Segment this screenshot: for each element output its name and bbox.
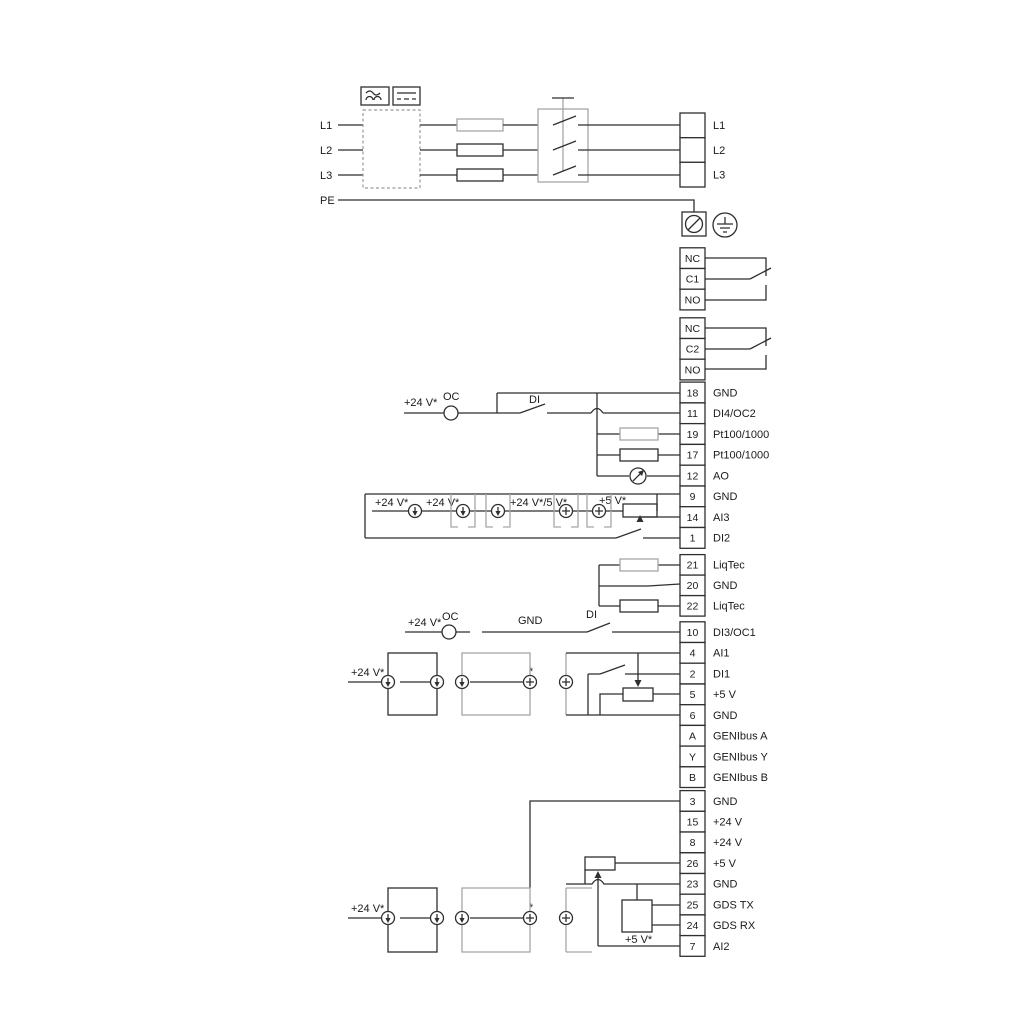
wire-label-24v: +24 V*: [351, 903, 385, 915]
pe-terminal: [682, 212, 706, 236]
liqtec-sensor-circuit: [599, 559, 680, 612]
terminal-number: 21: [687, 560, 699, 572]
current-source-icon: [560, 912, 573, 925]
current-sink-icon: [456, 912, 469, 925]
rcd-type-dc-icon: [393, 87, 420, 105]
mains-input-label: L2: [320, 145, 332, 157]
terminal-number: 14: [687, 512, 699, 524]
terminal-label: L2: [713, 145, 725, 157]
mains-output-block: L1L2L3: [680, 113, 725, 187]
io-strip-3: 3GND15+24 V8+24 V26+5 V23GND25GDS TX24GD…: [680, 791, 756, 957]
mains-input-section: L1 L2 L3 PE: [320, 87, 737, 237]
terminal-number: 4: [690, 648, 696, 660]
terminal-label: GENIbus B: [713, 772, 768, 784]
terminal-number: B: [689, 772, 696, 784]
terminal-label: LiqTec: [713, 601, 745, 613]
wire-label-24v: +24 V*: [375, 497, 409, 509]
terminal-number: 11: [687, 408, 698, 420]
terminal-cell: [680, 162, 705, 187]
current-sink-icon: [431, 912, 444, 925]
fuse-symbol: [457, 119, 503, 131]
terminal-label: Pt100/1000: [713, 429, 769, 441]
terminal-number: 20: [687, 580, 699, 592]
sensor-option-frame: [388, 888, 437, 952]
wire-label-24v: +24 V*: [404, 397, 438, 409]
wire-label-5v: +5 V*: [625, 934, 653, 946]
potentiometer-symbol: [623, 688, 653, 701]
terminal-label: DI2: [713, 533, 730, 545]
terminal-number: C1: [686, 274, 700, 286]
current-sink-icon: [382, 912, 395, 925]
ai1-di1-circuit: +24 V* +24 V* +24 V*/5 V*: [348, 653, 680, 715]
terminal-label: L1: [713, 120, 725, 132]
current-source-icon: [524, 912, 537, 925]
terminal-number: 3: [690, 796, 696, 808]
potentiometer-symbol: [585, 857, 615, 870]
wire-label-24v: +24 V*: [426, 497, 460, 509]
terminal-label: +24 V: [713, 837, 743, 849]
terminal-number: A: [689, 731, 696, 743]
wire-label-gnd: GND: [518, 615, 543, 627]
terminal-strips: L1L2L3NCC1NONCC2NO18GND11DI4/OC219Pt100/…: [680, 113, 769, 956]
mains-input-label: L3: [320, 170, 332, 182]
wire-label-24v-5v: +24 V*/5 V*: [510, 497, 568, 509]
wire-label-24v: +24 V*: [408, 617, 442, 629]
terminal-label: GDS RX: [713, 920, 756, 932]
terminal-number: 19: [687, 429, 699, 441]
terminal-label: GND: [713, 580, 738, 592]
terminal-number: 5: [690, 689, 696, 701]
current-sink-icon: [409, 505, 422, 518]
rcd-type-ac-icon: [361, 87, 389, 105]
terminal-number: 9: [690, 491, 696, 503]
wire-label-oc: OC: [442, 611, 459, 623]
terminal-number: 7: [690, 941, 696, 953]
ai2-gds-circuit: +24 V* +24 V* +24 V*/5 V* +5 V*: [348, 801, 680, 952]
terminal-label: AI3: [713, 512, 730, 524]
current-source-icon: [524, 676, 537, 689]
current-sink-icon: [457, 505, 470, 518]
terminal-label: +24 V: [713, 817, 743, 829]
wire-jump: [591, 409, 680, 414]
pt100-sensor-symbol: [620, 449, 658, 461]
terminal-number: 1: [690, 533, 696, 545]
wire-label-oc: OC: [443, 391, 460, 403]
relay2-contact-symbol: [705, 328, 771, 369]
current-sink-icon: [456, 676, 469, 689]
wiper-arrow: [635, 680, 642, 687]
rcd-box: [363, 110, 420, 188]
rcd-to-fuse-wires: [420, 125, 457, 175]
io-strip-1: 18GND11DI4/OC219Pt100/100017Pt100/100012…: [680, 382, 769, 548]
open-collector-icon: [444, 406, 458, 420]
open-collector-icon: [442, 625, 456, 639]
terminal-label: GND: [713, 491, 738, 503]
wiper-arrow: [595, 871, 602, 878]
liqtec-sensor-symbol: [620, 600, 658, 612]
terminal-number: NC: [685, 253, 701, 265]
terminal-number: 18: [687, 387, 699, 399]
terminal-label: +5 V: [713, 858, 737, 870]
terminal-number: C2: [686, 344, 700, 356]
analog-output-meter-icon: [630, 468, 646, 484]
terminal-label: GENIbus A: [713, 731, 768, 743]
liqtec-sensor-symbol: [620, 559, 658, 571]
terminal-label: +5 V: [713, 689, 737, 701]
wiring-diagram-canvas: L1 L2 L3 PE: [0, 0, 1024, 1024]
di4-oc2-circuit: +24 V* OC DI: [404, 391, 680, 484]
sensor-option-frame: [462, 888, 530, 952]
wire-label-24v: +24 V*: [351, 667, 385, 679]
terminal-label: DI4/OC2: [713, 408, 756, 420]
terminal-label: GND: [713, 796, 738, 808]
terminal-label: LiqTec: [713, 560, 745, 572]
terminal-number: 17: [687, 450, 699, 462]
terminal-label: GDS TX: [713, 899, 754, 911]
terminal-number: NC: [685, 323, 701, 335]
terminal-number: NO: [685, 364, 701, 376]
pe-wire: [338, 200, 694, 212]
relay1-contact-symbol: [705, 258, 771, 300]
sensor-option-frame: [462, 653, 530, 715]
terminal-cell: [680, 113, 705, 138]
terminal-number: 12: [687, 470, 699, 482]
terminal-label: AI1: [713, 648, 730, 660]
di3-oc1-circuit: +24 V* OC GND DI: [405, 609, 680, 639]
relay2-block: NCC2NO: [680, 318, 705, 380]
terminal-number: 23: [687, 879, 699, 891]
wire-label-di: DI: [586, 609, 597, 621]
current-source-icon: [593, 505, 606, 518]
gds-sensor-box: [622, 900, 652, 932]
terminal-label: Pt100/1000: [713, 450, 769, 462]
sensor-option-frame: [388, 653, 437, 715]
mains-input-wires: [338, 125, 363, 175]
di2-switch: [365, 529, 680, 538]
terminal-number: 15: [687, 817, 699, 829]
liqtec-strip: 21LiqTec20GND22LiqTec: [680, 555, 745, 617]
terminal-number: Y: [689, 751, 696, 763]
relay1-block: NCC1NO: [680, 248, 705, 310]
current-sink-icon: [382, 676, 395, 689]
terminal-number: 10: [687, 627, 699, 639]
io-strip-2: 10DI3/OC14AI12DI15+5 V6GNDAGENIbus AYGEN…: [680, 622, 768, 788]
current-sink-icon: [431, 676, 444, 689]
terminal-label: GENIbus Y: [713, 751, 768, 763]
current-source-icon: [560, 676, 573, 689]
terminal-cell: [680, 138, 705, 163]
terminal-number: 25: [687, 899, 699, 911]
mains-input-label: PE: [320, 195, 335, 207]
terminal-number: 24: [687, 920, 699, 932]
current-sink-icon: [492, 505, 505, 518]
terminal-number: NO: [685, 294, 701, 306]
terminal-number: 26: [687, 858, 699, 870]
terminal-label: AI2: [713, 941, 730, 953]
fuse-symbol: [457, 144, 503, 156]
terminal-label: AO: [713, 470, 729, 482]
terminal-number: 22: [687, 601, 699, 613]
terminal-label: DI3/OC1: [713, 627, 756, 639]
terminal-label: DI1: [713, 668, 730, 680]
current-source-icon: [560, 505, 573, 518]
fuse-symbol: [457, 169, 503, 181]
wire-jump: [566, 880, 680, 885]
terminal-number: 8: [690, 837, 696, 849]
terminal-number: 2: [690, 668, 696, 680]
wire-label-di: DI: [529, 394, 540, 406]
terminal-number: 6: [690, 710, 696, 722]
earth-ground-icon: [713, 213, 737, 237]
terminal-label: L3: [713, 170, 725, 182]
pt100-sensor-symbol: [620, 428, 658, 440]
terminal-label: GND: [713, 879, 738, 891]
main-switch-symbol: [538, 98, 680, 182]
terminal-label: GND: [713, 710, 738, 722]
gnd-rail-wire: [530, 801, 680, 888]
mains-input-label: L1: [320, 120, 332, 132]
terminal-label: GND: [713, 387, 738, 399]
